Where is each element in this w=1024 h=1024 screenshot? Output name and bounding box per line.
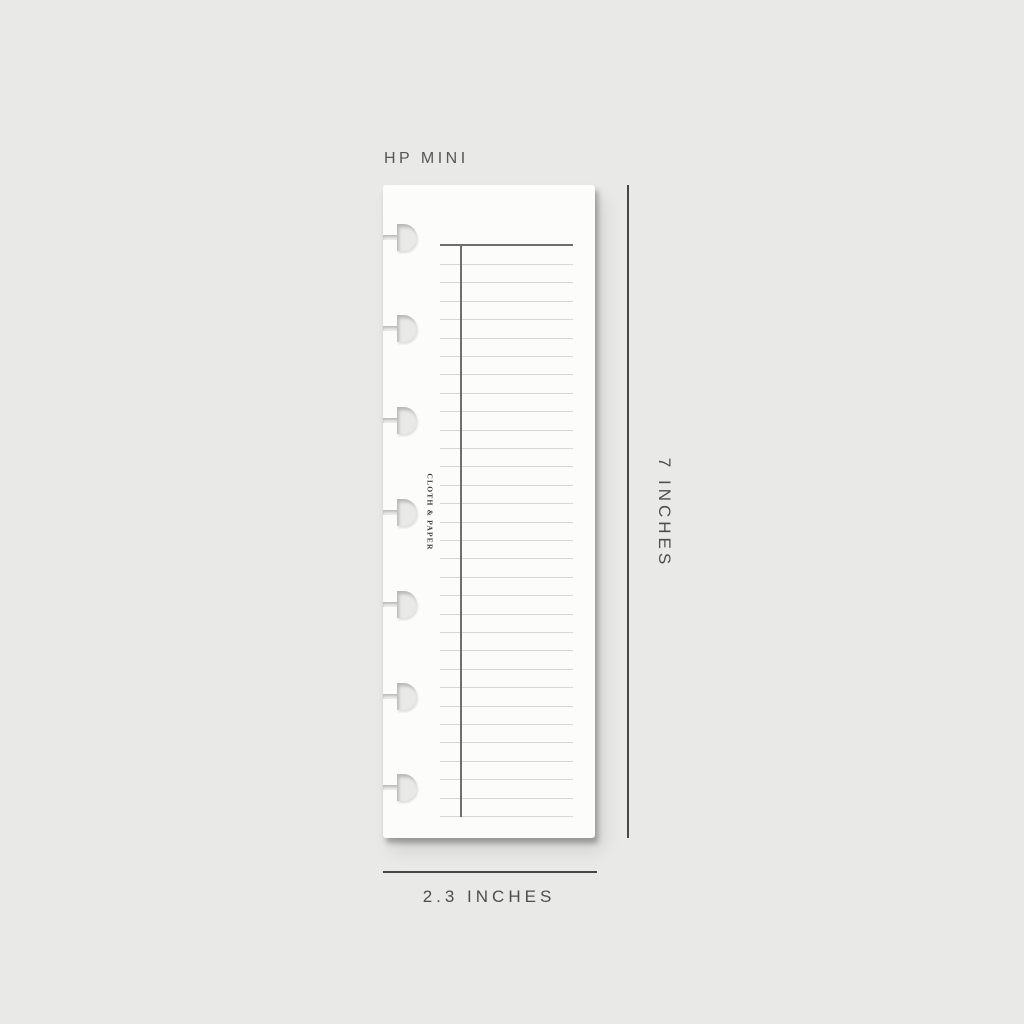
punch-disc xyxy=(397,683,417,710)
brand-text: CLOTH & PAPER xyxy=(426,473,435,550)
height-dimension-label: 7 INCHES xyxy=(654,458,674,568)
disc-punch-hole xyxy=(383,774,423,801)
punch-disc xyxy=(397,591,417,618)
disc-punch-hole xyxy=(383,224,423,251)
disc-punch-hole xyxy=(383,591,423,618)
disc-punch-hole xyxy=(383,315,423,342)
disc-punch-hole xyxy=(383,499,423,526)
punch-disc xyxy=(397,407,417,434)
disc-punch-hole xyxy=(383,407,423,434)
width-dimension-label: 2.3 INCHES xyxy=(423,887,556,907)
product-mockup-scene: HP MINI CLOTH & PAPER 7 INCHES 2.3 INCHE… xyxy=(0,0,1024,1024)
punch-disc xyxy=(397,774,417,801)
punch-disc xyxy=(397,499,417,526)
height-dimension-line xyxy=(627,185,629,838)
width-dimension-line xyxy=(383,871,597,873)
disc-punch-hole xyxy=(383,683,423,710)
page-size-title: HP MINI xyxy=(384,150,469,168)
planner-insert-page: CLOTH & PAPER xyxy=(383,185,595,838)
margin-rule-line xyxy=(460,244,462,817)
punch-disc xyxy=(397,315,417,342)
punch-disc xyxy=(397,224,417,251)
